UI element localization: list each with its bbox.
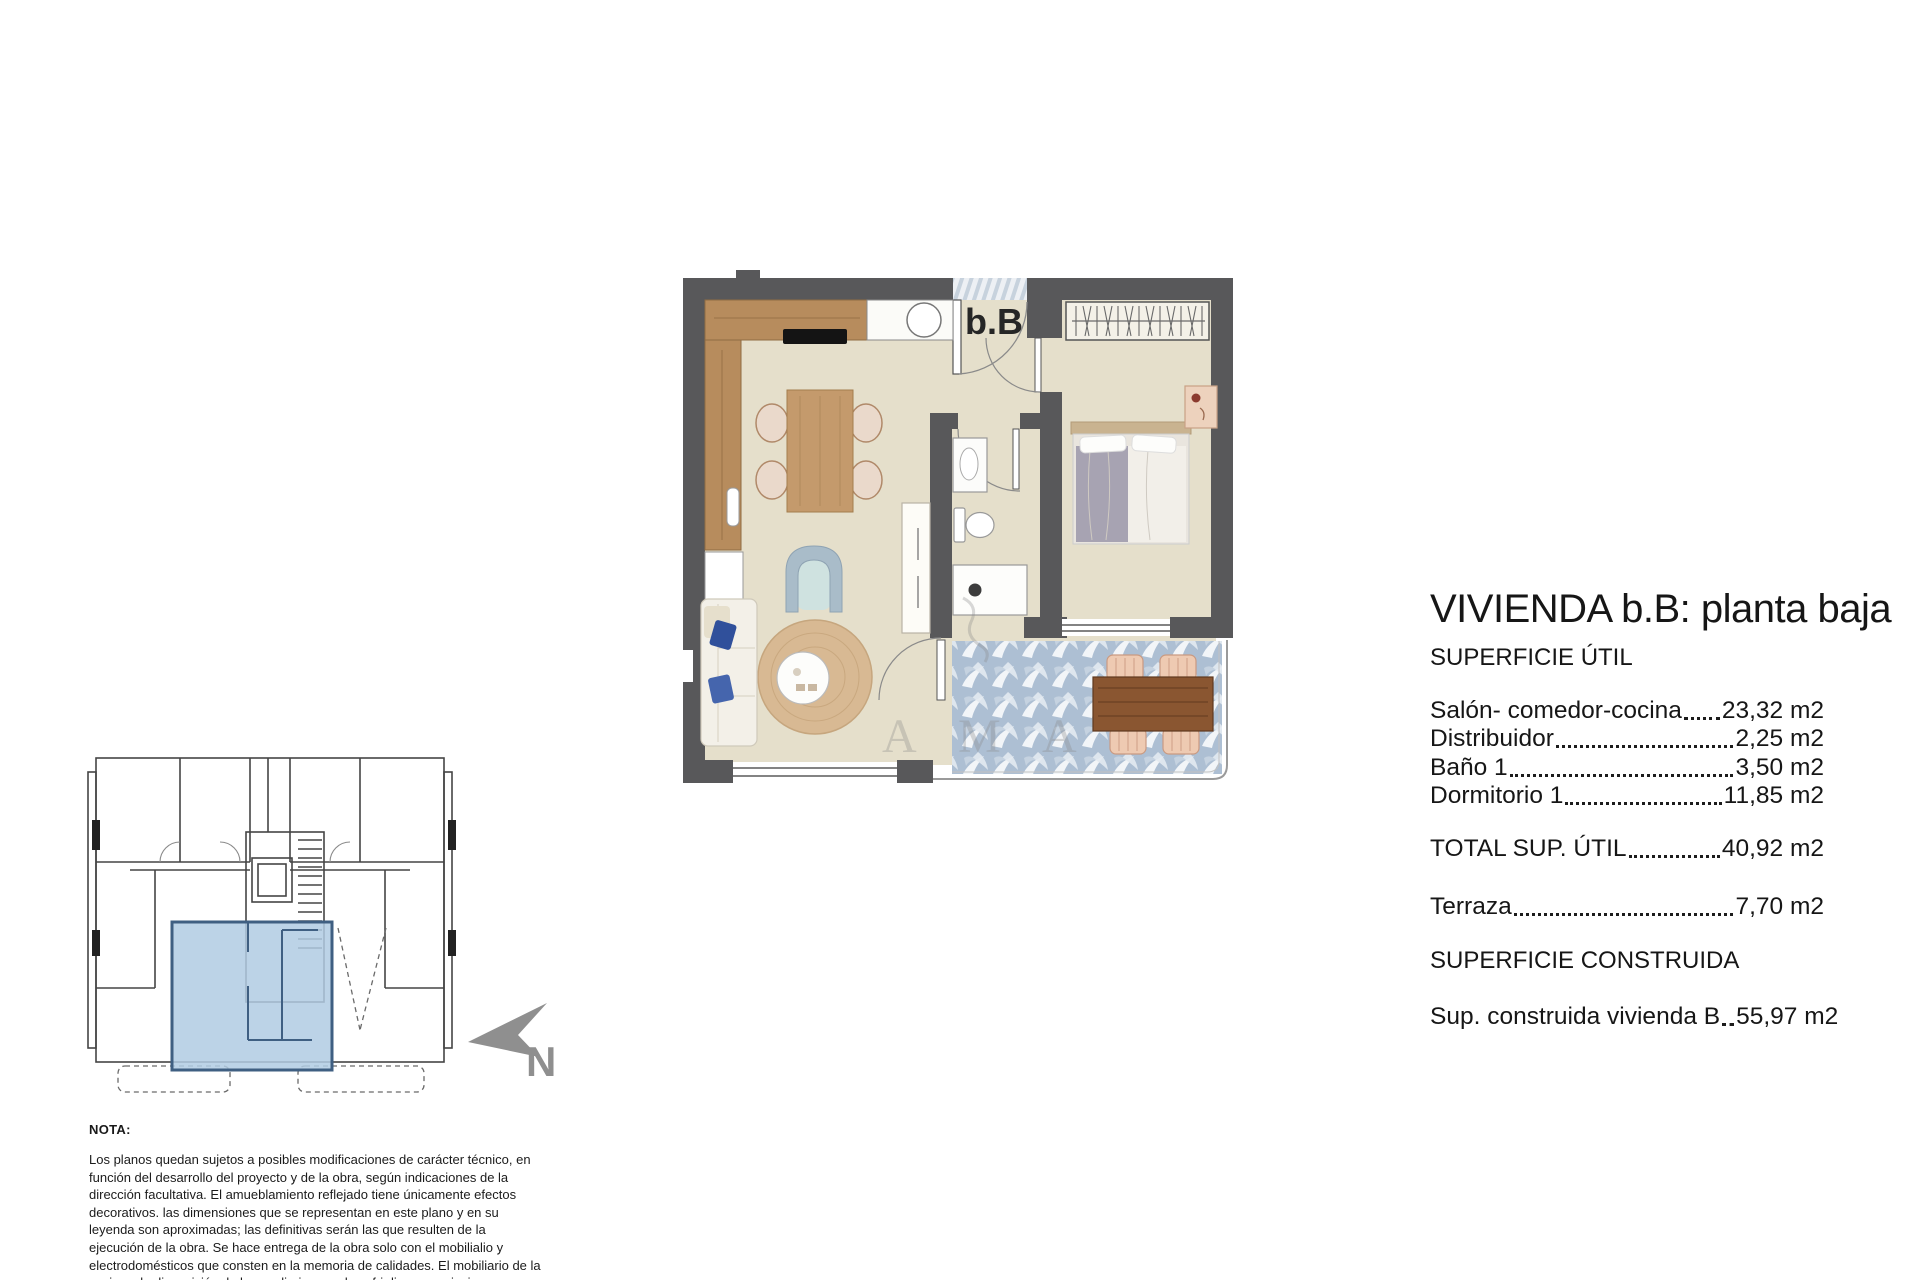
leader-dots [1722,1023,1734,1026]
terrace-table [1093,677,1213,731]
note: NOTA: Los planos quedan sujetos a posibl… [89,1122,541,1280]
leader-dots [1684,717,1720,720]
area-label: Sup. construida vivienda B [1430,1003,1720,1031]
area-value: 55,97 m2 [1736,1003,1838,1031]
area-value: 40,92 m2 [1722,835,1824,863]
armchair [786,546,842,612]
terrace-row: Terraza 7,70 m2 [1430,893,1824,922]
note-body: Los planos quedan sujetos a posibles mod… [89,1151,541,1280]
bed [1071,422,1191,544]
plan-sheet: A M A b.B [0,0,1920,1280]
area-label: Salón- comedor-cocina [1430,697,1682,725]
kitchen-sink [907,303,941,337]
area-label: Distribuidor [1430,725,1554,753]
area-value: 7,70 m2 [1735,893,1824,921]
sofa [701,599,757,746]
area-value: 2,25 m2 [1735,725,1824,753]
north-arrow: N [468,1003,556,1085]
leader-dots [1629,855,1720,858]
area-label: Dormitorio 1 [1430,782,1563,810]
area-label: Terraza [1430,893,1512,921]
area-row: Dormitorio 1 11,85 m2 [1430,782,1824,811]
sheet-title: VIVIENDA b.B: planta baja [1430,588,1824,630]
wardrobe [1066,302,1209,340]
toilet [966,513,994,538]
leader-dots [1510,774,1734,777]
cooktop [783,329,847,344]
util-header: SUPERFICIE ÚTIL [1430,644,1824,672]
area-label: TOTAL SUP. ÚTIL [1430,835,1627,863]
coffee-table [777,652,829,704]
area-row: Salón- comedor-cocina 23,32 m2 [1430,696,1824,725]
rug [758,620,872,734]
leader-dots [1556,745,1734,748]
area-value: 3,50 m2 [1735,754,1824,782]
note-heading: NOTA: [89,1122,541,1137]
area-value: 11,85 m2 [1724,782,1824,810]
area-row: Distribuidor 2,25 m2 [1430,725,1824,754]
key-plan: N [80,745,580,1115]
area-value: 23,32 m2 [1722,697,1824,725]
pillow [1080,435,1127,453]
construida-row: Sup. construida vivienda B 55,97 m2 [1430,1002,1824,1031]
area-label: Baño 1 [1430,754,1508,782]
area-rows: Salón- comedor-cocina 23,32 m2 Distribui… [1430,696,1824,810]
main-floor-plan: A M A b.B [660,250,1260,800]
watermark-text: A M A [882,710,1093,763]
shower [953,565,1027,615]
key-door-arcs [160,842,350,862]
leader-dots [1565,802,1721,805]
leader-dots [1514,913,1734,916]
highlighted-unit [172,922,332,1070]
unit-label: b.B [965,301,1023,342]
area-summary: VIVIENDA b.B: planta baja SUPERFICIE ÚTI… [1430,588,1824,1031]
total-row: TOTAL SUP. ÚTIL 40,92 m2 [1430,834,1824,863]
sideboard [902,503,930,633]
bedside-table [1185,386,1217,428]
construida-header: SUPERFICIE CONSTRUIDA [1430,947,1824,975]
north-label: N [526,1038,556,1085]
pillow [1131,434,1176,453]
area-row: Baño 1 3,50 m2 [1430,753,1824,782]
